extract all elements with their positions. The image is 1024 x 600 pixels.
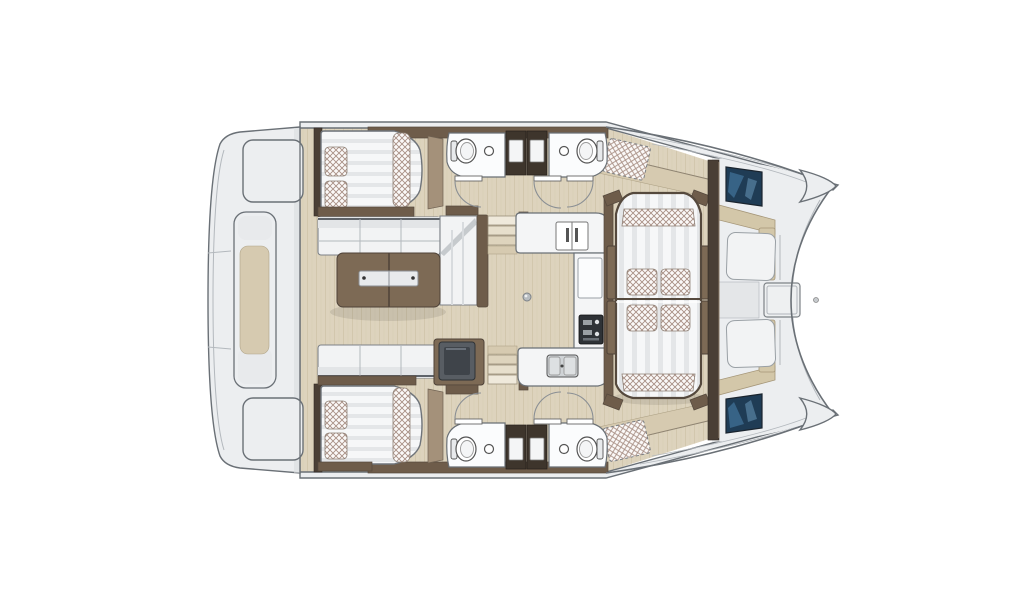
galley-appliance xyxy=(556,222,588,250)
center-sunbed xyxy=(603,190,710,410)
heads-upper xyxy=(447,131,608,177)
saloon-table xyxy=(337,253,440,307)
floor-plan-canvas xyxy=(0,0,1024,600)
cushion xyxy=(627,269,657,295)
basin xyxy=(485,147,494,156)
berth-runner xyxy=(393,388,410,462)
pillow xyxy=(325,147,347,176)
pillow xyxy=(325,181,347,208)
toilet xyxy=(577,139,603,163)
cockpit-bulkhead xyxy=(708,160,719,440)
pillow xyxy=(325,401,347,429)
hull-hatch-upper xyxy=(726,167,762,206)
deck-locker-upper xyxy=(243,140,303,202)
saloon-sofa-lower xyxy=(318,345,437,378)
toilet xyxy=(577,437,603,461)
cushion xyxy=(627,305,657,331)
cockpit-table xyxy=(764,283,800,317)
basin xyxy=(485,445,494,454)
floor-drain xyxy=(523,293,531,301)
galley-sink xyxy=(547,355,578,377)
basin xyxy=(560,445,569,454)
toilet xyxy=(451,139,476,163)
heads-lower xyxy=(447,423,608,469)
hull-hatch-lower xyxy=(726,394,762,433)
aft-platform xyxy=(208,127,303,473)
basin xyxy=(560,147,569,156)
berth-runner xyxy=(393,133,410,207)
floor-plan xyxy=(0,0,1024,600)
toilet xyxy=(451,437,476,461)
stove xyxy=(579,315,603,344)
wardrobe-wall xyxy=(428,136,443,209)
pillow xyxy=(325,433,347,459)
cushion xyxy=(661,269,690,295)
nav-appliance xyxy=(434,339,484,385)
wardrobe-wall xyxy=(428,389,443,463)
deck-locker-lower xyxy=(243,398,303,460)
cushion xyxy=(661,305,690,331)
